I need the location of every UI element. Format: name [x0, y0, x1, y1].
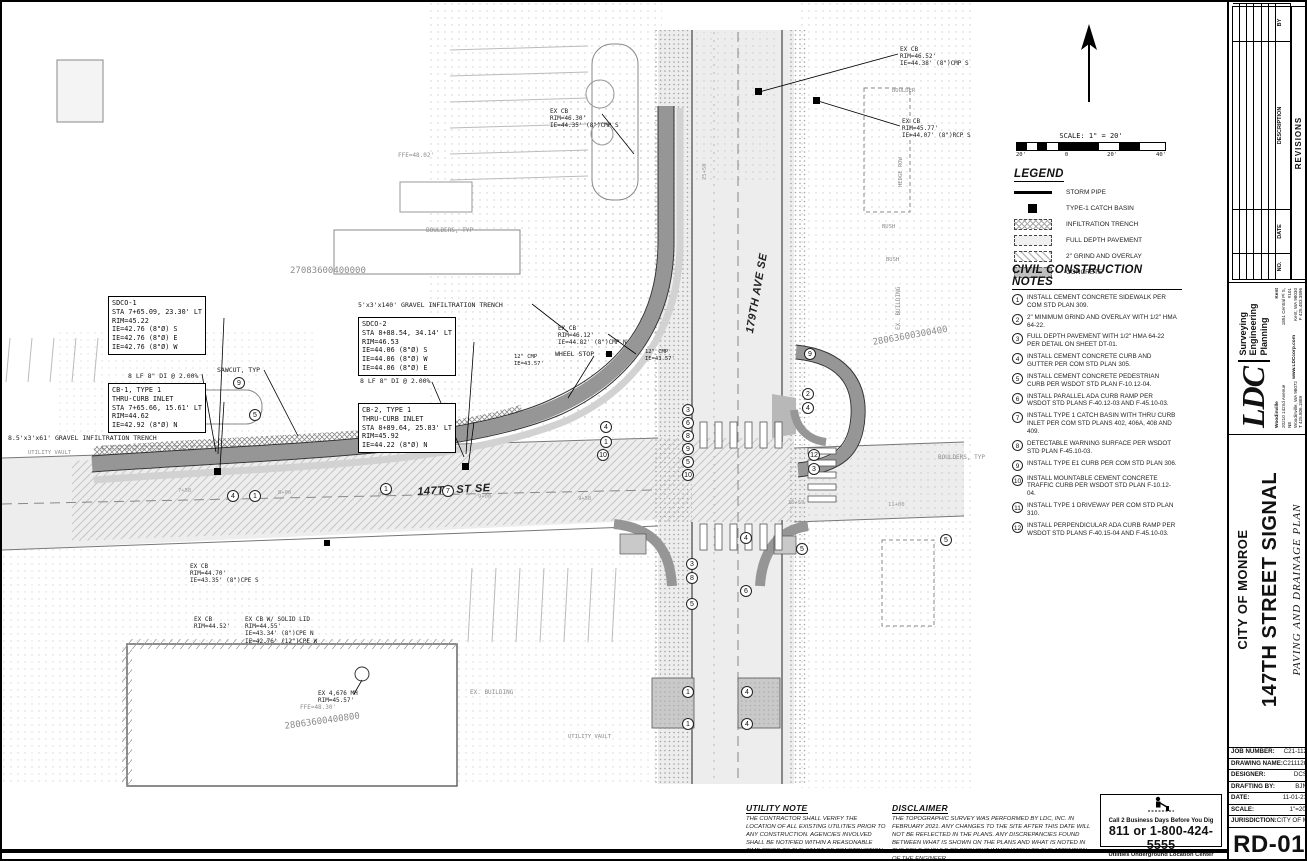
structure-callout: CB-1, TYPE 1THRU-CURB INLETSTA 7+65.66, …	[108, 383, 206, 433]
revision-cell	[1254, 3, 1261, 41]
grind-overlay-swatch	[1014, 251, 1052, 262]
note-reference-marker: 10	[597, 449, 609, 461]
utility-note-title: UTILITY NOTE	[746, 803, 808, 814]
info-value: C21-112	[1284, 747, 1307, 758]
callout-line: SDCO-1	[112, 299, 202, 308]
legend-item: FULL DEPTH PAVEMENT	[1014, 235, 1182, 246]
note-reference-marker: 3	[682, 404, 694, 416]
note-text: INSTALL PERPENDICULAR ADA CURB RAMP PER …	[1027, 522, 1177, 538]
revision-cell	[1262, 41, 1269, 209]
firm-logo: LDC	[1235, 367, 1272, 428]
note-reference-marker: 8	[686, 572, 698, 584]
plan-label: 9+00	[478, 494, 491, 501]
note-reference-marker: 12	[808, 449, 820, 461]
info-label: JOB NUMBER:	[1231, 747, 1275, 758]
legend-item-label: STORM PIPE	[1066, 189, 1106, 196]
revision-cell	[1269, 41, 1276, 209]
dig-phone: 811 or 1-800-424-5555	[1101, 824, 1221, 852]
callout-line: IE=42.76 (8"Ø) E	[112, 334, 202, 343]
note-reference-marker: 5	[682, 456, 694, 468]
scale-tick: 20'	[1107, 152, 1117, 158]
client-name: CITY OF MONROE	[1235, 434, 1250, 745]
info-row: DRAWING NAME:C21112C-RD-PL	[1229, 759, 1307, 771]
revision-column-header: BY	[1276, 3, 1291, 41]
legend-item-label: 2" GRIND AND OVERLAY	[1066, 253, 1142, 260]
legend-item: INFILTRATION TRENCH	[1014, 219, 1182, 230]
full-depth-swatch	[1014, 235, 1052, 246]
note-item: 9INSTALL TYPE E1 CURB PER COM STD PLAN 3…	[1012, 460, 1182, 471]
revision-cell	[1262, 3, 1269, 41]
revisions-table: NO.DATEDESCRIPTIONBY REVISIONS	[1232, 6, 1306, 280]
note-text: INSTALL TYPE 1 CATCH BASIN WITH THRU CUR…	[1027, 412, 1177, 436]
firm-service: Engineering	[1248, 303, 1258, 355]
note-reference-marker: 4	[227, 490, 239, 502]
project-title-block: CITY OF MONROE 147TH STREET SIGNAL PAVIN…	[1232, 434, 1306, 745]
note-number: 5	[1012, 373, 1023, 384]
plan-label: EX CB RIM=45.77' IE=44.07' (8")RCP S	[902, 118, 971, 140]
revision-column-header: DATE	[1276, 209, 1291, 253]
revision-cell	[1254, 41, 1261, 209]
scale-tick: 40'	[1156, 152, 1166, 158]
plan-label: EX. BUILDING	[470, 689, 513, 696]
callout-line: RIM=45.92	[362, 432, 452, 441]
note-item: 5INSTALL CEMENT CONCRETE PEDESTRIAN CURB…	[1012, 373, 1182, 389]
plan-label: BOULDER	[892, 88, 915, 95]
revision-column-header: DESCRIPTION	[1276, 41, 1291, 209]
note-reference-marker: 9	[233, 377, 245, 389]
note-reference-marker: 5	[940, 534, 952, 546]
note-text: INSTALL TYPE E1 CURB PER COM STD PLAN 30…	[1027, 460, 1177, 471]
scale-tick: 0	[1065, 152, 1068, 158]
plan-label: 8+00	[278, 490, 291, 497]
info-label: DRAFTING BY:	[1231, 782, 1275, 793]
plan-label: 5'x3'x140' GRAVEL INFILTRATION TRENCH	[358, 302, 503, 310]
revision-cell	[1240, 253, 1247, 279]
firm-website: www.LDCcorp.com	[1292, 335, 1298, 379]
structure-callout: SDCO-2STA 8+88.54, 34.14' LTRIM=46.53IE=…	[358, 317, 456, 376]
callout-line: CB-2, TYPE 1	[362, 406, 452, 415]
title-block: NO.DATEDESCRIPTIONBY REVISIONS LDC Surve…	[1227, 2, 1307, 861]
plan-label: 10+50	[788, 500, 805, 507]
note-reference-marker: 4	[802, 402, 814, 414]
note-number: 10	[1012, 475, 1023, 486]
callout-line: IE=44.06 (8"Ø) S	[362, 346, 452, 355]
note-text: INSTALL MOUNTABLE CEMENT CONCRETE TRAFFI…	[1027, 475, 1177, 499]
plan-label: 12" CMP IE=43.57'	[645, 349, 675, 362]
plan-label: WHEEL STOP	[555, 351, 594, 359]
callout-line: IE=42.76 (8"Ø) S	[112, 325, 202, 334]
construction-notes: CIVIL CONSTRUCTION NOTES 1INSTALL CEMENT…	[1012, 264, 1182, 538]
scale-tick: 20'	[1016, 152, 1026, 158]
note-text: INSTALL PARALLEL ADA CURB RAMP PER WSDOT…	[1027, 393, 1177, 409]
note-number: 3	[1012, 333, 1023, 344]
note-text: INSTALL CEMENT CONCRETE PEDESTRIAN CURB …	[1027, 373, 1177, 389]
revision-cell	[1262, 209, 1269, 253]
info-value: 1"=20'	[1290, 805, 1307, 816]
note-reference-marker: 2	[802, 388, 814, 400]
note-reference-marker: 4	[600, 421, 612, 433]
revision-cell	[1247, 209, 1254, 253]
plan-label: HEDGE ROW	[898, 157, 905, 187]
plan-label: UTILITY VAULT	[568, 734, 611, 741]
note-number: 11	[1012, 502, 1023, 513]
scale-bar-graphic	[1016, 142, 1166, 151]
firm-block: LDC SurveyingEngineeringPlanning Woodinv…	[1232, 284, 1306, 432]
note-reference-marker: 5	[796, 543, 808, 555]
note-item: 6INSTALL PARALLEL ADA CURB RAMP PER WSDO…	[1012, 393, 1182, 409]
note-text: INSTALL CEMENT CONCRETE CURB AND GUTTER …	[1027, 353, 1177, 369]
revision-cell	[1269, 253, 1276, 279]
legend-item-label: INFILTRATION TRENCH	[1066, 221, 1138, 228]
info-row: JOB NUMBER:C21-112	[1229, 747, 1307, 759]
plan-label: 11+00	[888, 502, 905, 509]
note-reference-marker: 8	[682, 430, 694, 442]
plan-label: EX CB W/ SOLID LID RIM=44.55' IE=43.34' …	[245, 616, 317, 645]
revisions-title: REVISIONS	[1291, 6, 1306, 280]
plan-label: SAWCUT, TYP	[217, 367, 260, 375]
sheet-title: PAVING AND DRAINAGE PLAN	[1291, 434, 1303, 745]
callout-line: STA 8+89.64, 25.83' LT	[362, 424, 452, 433]
plan-label: EX CB RIM=46.12' IE=44.82' (8")CMP N	[558, 325, 627, 347]
note-item: 7INSTALL TYPE 1 CATCH BASIN WITH THRU CU…	[1012, 412, 1182, 436]
callout-line: CB-1, TYPE 1	[112, 386, 202, 395]
note-text: FULL DEPTH PAVEMENT WITH 1/2" HMA 64-22 …	[1027, 333, 1177, 349]
legend-item-label: FULL DEPTH PAVEMENT	[1066, 237, 1142, 244]
legend: LEGEND STORM PIPETYPE-1 CATCH BASININFIL…	[1014, 164, 1182, 278]
legend-item: 2" GRIND AND OVERLAY	[1014, 251, 1182, 262]
revision-cell	[1269, 3, 1276, 41]
note-reference-marker: 3	[808, 463, 820, 475]
revision-cell	[1233, 41, 1240, 209]
firm-office-2: Kent 1851 Central Pl S, #101 Kent, WA 98…	[1275, 288, 1304, 335]
note-reference-marker: 6	[682, 417, 694, 429]
note-text: 2" MINIMUM GRIND AND OVERLAY WITH 1/2" H…	[1027, 314, 1177, 330]
note-item: 12INSTALL PERPENDICULAR ADA CURB RAMP PE…	[1012, 522, 1182, 538]
note-text: INSTALL CEMENT CONCRETE SIDEWALK PER COM…	[1027, 294, 1177, 310]
infiltration-trench-swatch	[1014, 219, 1052, 230]
note-text: DETECTABLE WARNING SURFACE PER WSDOT STD…	[1027, 440, 1177, 456]
disclaimer-title: DISCLAIMER	[892, 803, 948, 814]
catch-basin-swatch	[1014, 203, 1052, 214]
callout-line: IE=44.06 (8"Ø) E	[362, 364, 452, 373]
revision-cell	[1247, 41, 1254, 209]
firm-services: SurveyingEngineeringPlanning	[1238, 303, 1269, 355]
plan-label: FFE=48.02'	[398, 152, 434, 159]
revision-cell	[1262, 253, 1269, 279]
info-row: DESIGNER:DCS	[1229, 770, 1307, 782]
info-label: DESIGNER:	[1231, 770, 1265, 781]
plan-label: UTILITY VAULT	[28, 450, 71, 457]
legend-title: LEGEND	[1014, 168, 1064, 182]
call-before-dig-box: Call 2 Business Days Before You Dig 811 …	[1100, 794, 1222, 847]
north-arrow-icon	[1081, 24, 1097, 102]
note-item: 10INSTALL MOUNTABLE CEMENT CONCRETE TRAF…	[1012, 475, 1182, 499]
legend-item-label: TYPE-1 CATCH BASIN	[1066, 205, 1134, 212]
note-item: 22" MINIMUM GRIND AND OVERLAY WITH 1/2" …	[1012, 314, 1182, 330]
plan-label: 8 LF 8" DI @ 2.00%	[360, 378, 430, 386]
sheet-bottom-border	[2, 849, 1227, 853]
plan-label: FFE=48.30'	[300, 704, 336, 711]
digger-icon	[1148, 796, 1174, 812]
callout-line: IE=44.22 (8"Ø) N	[362, 441, 452, 450]
note-reference-marker: 1	[249, 490, 261, 502]
utility-note: UTILITY NOTE THE CONTRACTOR SHALL VERIFY…	[746, 798, 886, 856]
note-reference-marker: 10	[682, 469, 694, 481]
revision-cell	[1247, 253, 1254, 279]
note-number: 4	[1012, 353, 1023, 364]
plan-label: 12" CMP IE=43.57'	[514, 354, 544, 367]
note-number: 7	[1012, 412, 1023, 423]
info-row: DRAFTING BY:BJN	[1229, 782, 1307, 794]
note-number: 1	[1012, 294, 1023, 305]
info-row: SCALE:1"=20'	[1229, 805, 1307, 817]
callout-line: STA 8+88.54, 34.14' LT	[362, 329, 452, 338]
revision-cell	[1269, 209, 1276, 253]
callout-line: STA 7+65.09, 23.30' LT	[112, 308, 202, 317]
plan-label: EX 4,676 MH RIM=45.57'	[318, 690, 358, 704]
info-value: 11-01-21	[1283, 793, 1307, 804]
callout-line: RIM=46.53	[362, 338, 452, 347]
note-number: 6	[1012, 393, 1023, 404]
note-item: 4INSTALL CEMENT CONCRETE CURB AND GUTTER…	[1012, 353, 1182, 369]
legend-item: TYPE-1 CATCH BASIN	[1014, 203, 1182, 214]
info-label: DRAWING NAME:	[1231, 759, 1283, 770]
info-value: DCS	[1294, 770, 1307, 781]
plan-label: BOULDERS, TYP	[426, 227, 473, 234]
project-name: 147TH STREET SIGNAL	[1259, 434, 1282, 745]
callout-line: IE=42.76 (8"Ø) W	[112, 343, 202, 352]
note-item: 11INSTALL TYPE 1 DRIVEWAY PER COM STD PL…	[1012, 502, 1182, 518]
structure-callout: CB-2, TYPE 1THRU-CURB INLETSTA 8+89.64, …	[358, 403, 456, 453]
scale-label: SCALE: 1" = 20'	[1016, 132, 1166, 140]
firm-office-1: Woodinville 20210 142nd Avenue NE Woodin…	[1275, 379, 1304, 428]
plan-label: 9+50	[578, 496, 591, 503]
notes-title: CIVIL CONSTRUCTION NOTES	[1012, 264, 1182, 290]
firm-service: Surveying	[1238, 303, 1248, 355]
callout-line: RIM=45.22	[112, 317, 202, 326]
plan-label: BUSH	[882, 224, 895, 231]
plan-label: 7+50	[178, 488, 191, 495]
note-reference-marker: 4	[741, 686, 753, 698]
callout-line: SDCO-2	[362, 320, 452, 329]
revision-cell	[1254, 209, 1261, 253]
info-value: BJN	[1295, 782, 1307, 793]
note-reference-marker: 4	[740, 532, 752, 544]
revision-cell	[1233, 3, 1240, 41]
scale-bar: SCALE: 1" = 20' 20'020'40'	[1016, 132, 1166, 158]
revision-cell	[1233, 209, 1240, 253]
note-reference-marker: 4	[741, 718, 753, 730]
note-reference-marker: 6	[740, 585, 752, 597]
callout-line: IE=44.06 (8"Ø) W	[362, 355, 452, 364]
firm-service: Planning	[1259, 303, 1269, 355]
plan-label: 8.5'x3'x61' GRAVEL INFILTRATION TRENCH	[8, 435, 157, 443]
scale-ticks: 20'020'40'	[1016, 152, 1166, 158]
note-reference-marker: 1	[600, 436, 612, 448]
note-item: 1INSTALL CEMENT CONCRETE SIDEWALK PER CO…	[1012, 294, 1182, 310]
legend-item: STORM PIPE	[1014, 187, 1182, 198]
note-reference-marker: 9	[682, 443, 694, 455]
callout-line: STA 7+65.66, 15.61' LT	[112, 404, 202, 413]
plan-label: EX CB RIM=44.70' IE=43.35' (8")CPE S	[190, 563, 259, 585]
note-reference-marker: 1	[682, 686, 694, 698]
plan-label: EX CB RIM=46.52' IE=44.38' (8")CMP S	[900, 46, 969, 68]
structure-callout: SDCO-1STA 7+65.09, 23.30' LTRIM=45.22IE=…	[108, 296, 206, 355]
note-reference-marker: 3	[686, 558, 698, 570]
plan-label: EX CB RIM=44.52'	[194, 616, 230, 630]
plan-label: EX. BUILDING	[895, 287, 902, 330]
plan-label: EX CB RIM=46.30' IE=44.35' (8")CMP S	[550, 108, 619, 130]
revision-cell	[1240, 3, 1247, 41]
info-label: SCALE:	[1231, 805, 1254, 816]
note-number: 8	[1012, 440, 1023, 451]
note-reference-marker: 9	[804, 348, 816, 360]
revision-cell	[1233, 253, 1240, 279]
note-item: 3FULL DEPTH PAVEMENT WITH 1/2" HMA 64-22…	[1012, 333, 1182, 349]
note-reference-marker: 7	[442, 485, 454, 497]
callout-line: RIM=44.62	[112, 412, 202, 421]
sheet-number: RD-01	[1229, 831, 1307, 859]
info-value: C21112C-RD-PL	[1283, 759, 1307, 770]
plan-label: BUSH	[886, 257, 899, 264]
info-label: JURISDICTION:	[1231, 816, 1277, 827]
note-number: 12	[1012, 522, 1023, 533]
revision-column-header: NO.	[1276, 253, 1291, 279]
info-row: DATE:11-01-21	[1229, 793, 1307, 805]
revision-cell	[1247, 3, 1254, 41]
revision-cell	[1240, 209, 1247, 253]
info-row: JURISDICTION:CITY OF MONROE	[1229, 816, 1307, 828]
info-label: DATE:	[1231, 793, 1249, 804]
note-number: 9	[1012, 460, 1023, 471]
note-number: 2	[1012, 314, 1023, 325]
note-reference-marker: 5	[686, 598, 698, 610]
plan-sheet: 2708360040000028063600300400280636004008…	[0, 0, 1307, 861]
callout-line: THRU-CURB INLET	[112, 395, 202, 404]
callout-line: IE=42.92 (8"Ø) N	[112, 421, 202, 430]
plan-label: BOULDERS, TYP	[938, 454, 985, 461]
info-value: CITY OF MONROE	[1277, 816, 1307, 827]
storm-pipe-swatch	[1014, 191, 1052, 194]
note-text: INSTALL TYPE 1 DRIVEWAY PER COM STD PLAN…	[1027, 502, 1177, 518]
note-reference-marker: 1	[380, 483, 392, 495]
revision-cell	[1254, 253, 1261, 279]
plan-label: 27083600400000	[290, 266, 366, 277]
note-reference-marker: 1	[682, 718, 694, 730]
plan-label: 8 LF 8" DI @ 2.00%	[128, 373, 198, 381]
revision-cell	[1240, 41, 1247, 209]
plan-label: 25+50	[702, 163, 709, 180]
note-reference-marker: 5	[249, 409, 261, 421]
disclaimer-text: THE TOPOGRAPHIC SURVEY WAS PERFORMED BY …	[892, 816, 1092, 861]
callout-line: THRU-CURB INLET	[362, 415, 452, 424]
drawing-info-table: JOB NUMBER:C21-112DRAWING NAME:C21112C-R…	[1229, 747, 1307, 861]
note-item: 8DETECTABLE WARNING SURFACE PER WSDOT ST…	[1012, 440, 1182, 456]
